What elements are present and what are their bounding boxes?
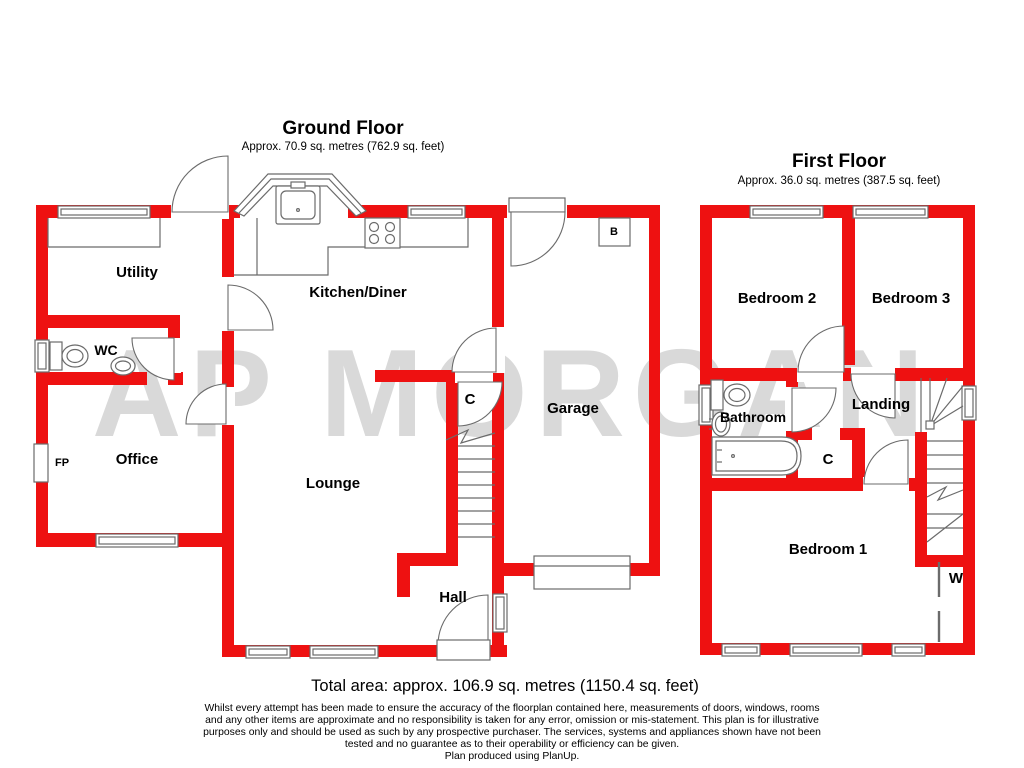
ground-floor-subtitle: Approx. 70.9 sq. metres (762.9 sq. feet): [242, 141, 445, 153]
bedroom2-window: [750, 206, 823, 218]
produced-with: Plan produced using PlanUp.: [445, 751, 580, 762]
office-label: Office: [116, 451, 159, 468]
garage-side-door-leaf: [509, 198, 565, 212]
footer: Total area: approx. 106.9 sq. metres (11…: [203, 677, 821, 762]
bedroom3-label: Bedroom 3: [872, 290, 950, 307]
bedroom3-window: [853, 206, 928, 218]
first-floor-subtitle: Approx. 36.0 sq. metres (387.5 sq. feet): [738, 175, 941, 187]
garage-door: [534, 556, 630, 589]
fireplace-label: FP: [55, 457, 69, 469]
bedroom2-label: Bedroom 2: [738, 290, 816, 307]
bedroom1-label: Bedroom 1: [789, 541, 867, 558]
hall-label: Hall: [439, 589, 467, 606]
fireplace: [34, 444, 48, 482]
kitchen-sink: [276, 182, 320, 224]
front-door: [437, 640, 490, 660]
first-floor-title: First Floor: [792, 151, 887, 172]
hall-kitchen-door: [228, 285, 273, 330]
disclaimer-line-3: purposes only and should be used as such…: [203, 727, 821, 738]
ground-floor-title: Ground Floor: [282, 118, 404, 139]
boiler-label: B: [610, 226, 618, 238]
cupboard-first-label: C: [823, 451, 834, 468]
hall-window: [493, 594, 507, 632]
lounge-label: Lounge: [306, 475, 360, 492]
kitchen-window: [408, 206, 465, 218]
office-window: [96, 534, 178, 547]
utility-label: Utility: [116, 264, 158, 281]
kitchen-diner-label: Kitchen/Diner: [309, 284, 407, 301]
cupboard-ground-label: C: [465, 391, 476, 408]
floorplan-canvas: AP MORGAN: [0, 0, 1024, 768]
bedroom1-window-3: [892, 644, 925, 656]
kitchen-worktop: [234, 218, 468, 275]
landing-label: Landing: [852, 396, 910, 413]
garage-side-door: [511, 212, 565, 266]
disclaimer-line-2: and any other items are approximate and …: [205, 715, 819, 726]
plan-titles: Ground Floor Approx. 70.9 sq. metres (76…: [242, 118, 941, 187]
bathtub: [712, 437, 801, 475]
floorplan-page: AP MORGAN: [0, 0, 1024, 768]
wc-window: [35, 340, 49, 372]
garage-label: Garage: [547, 400, 599, 417]
stairs-window: [962, 386, 976, 420]
wc-toilet: [50, 342, 88, 370]
wc-sink: [111, 357, 135, 375]
bedroom1-window-1: [722, 644, 760, 656]
wardrobe-label: W: [949, 570, 964, 587]
lounge-window-2: [310, 646, 378, 658]
hob: [365, 218, 400, 248]
wc-label: WC: [94, 342, 117, 358]
lounge-window-1: [246, 646, 290, 658]
disclaimer-line-1: Whilst every attempt has been made to en…: [204, 703, 819, 714]
disclaimer-line-4: tested and no guarantee as to their oper…: [345, 739, 679, 750]
front-entrance-door: [172, 156, 228, 212]
utility-worktop: [48, 218, 160, 247]
total-area: Total area: approx. 106.9 sq. metres (11…: [311, 677, 699, 695]
bathroom-label: Bathroom: [720, 409, 786, 425]
utility-window: [58, 206, 150, 218]
bedroom1-window-2: [790, 644, 862, 656]
